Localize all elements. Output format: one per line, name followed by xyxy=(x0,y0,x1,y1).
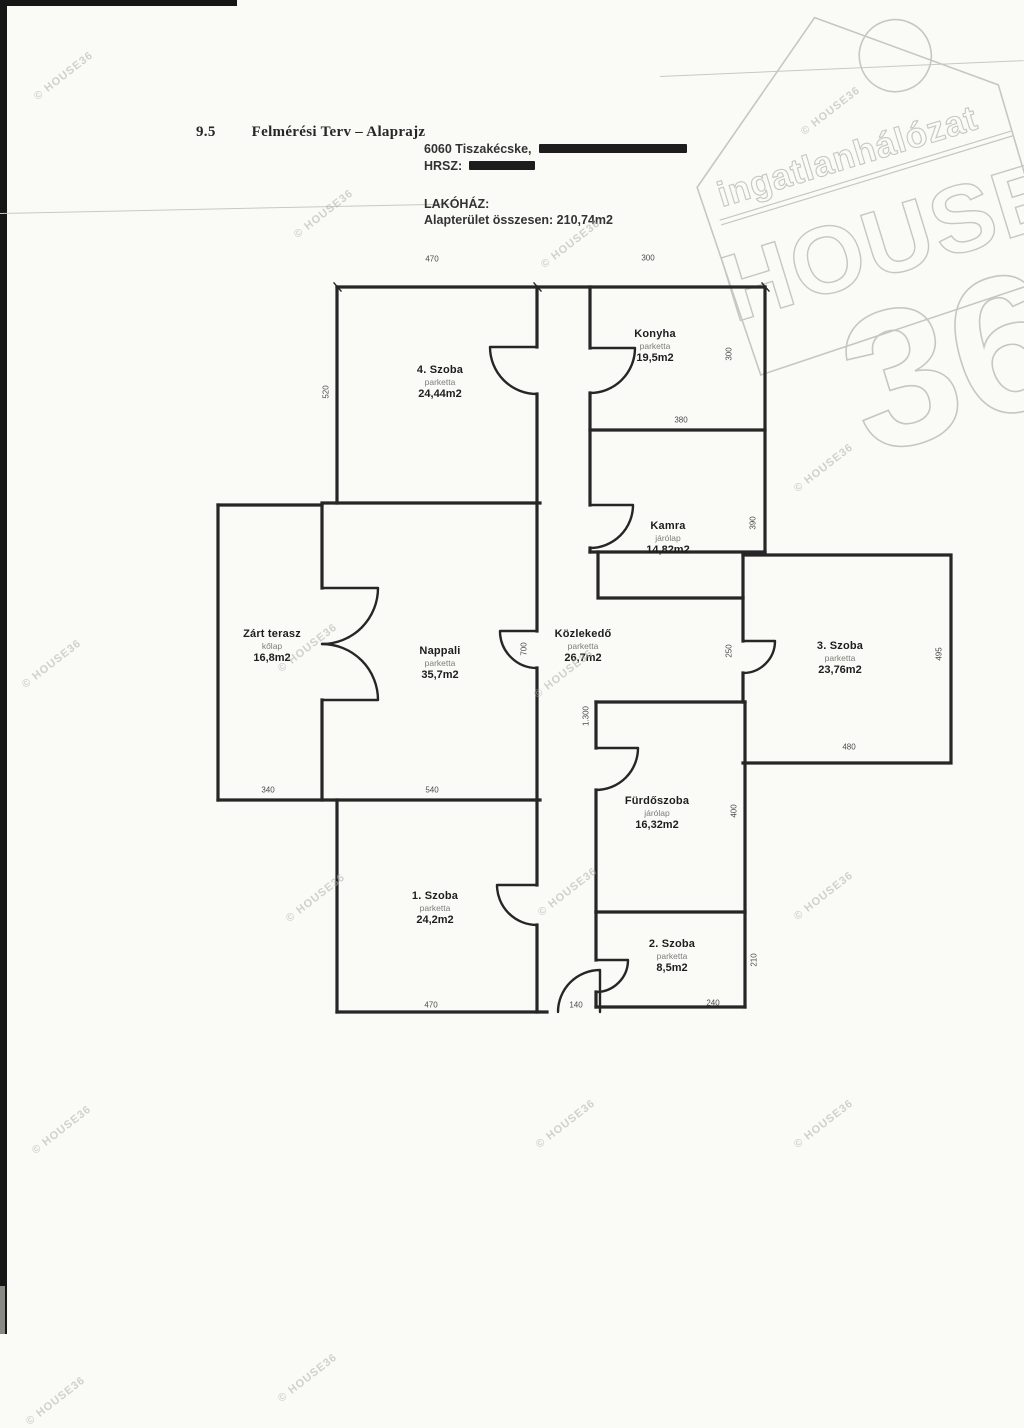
room-name: Nappali xyxy=(419,645,460,657)
room-label-konyha: Konyha parketta 19,5m2 xyxy=(634,328,676,364)
dim-label: 300 xyxy=(725,347,734,360)
dim-label: 700 xyxy=(520,642,529,655)
room-floor: parketta xyxy=(419,658,460,668)
room-label-4-szoba: 4. Szoba parketta 24,44m2 xyxy=(417,364,463,400)
dim-label: 340 xyxy=(261,786,274,795)
dim-label: 520 xyxy=(322,385,331,398)
dim-label: 250 xyxy=(725,644,734,657)
room-floor: kőlap xyxy=(243,641,301,651)
room-name: Kamra xyxy=(646,520,689,532)
room-label-1-szoba: 1. Szoba parketta 24,2m2 xyxy=(412,890,458,926)
room-name: 3. Szoba xyxy=(817,640,863,652)
room-area: 24,44m2 xyxy=(417,388,463,400)
room-label-nappali: Nappali parketta 35,7m2 xyxy=(419,645,460,681)
room-area: 16,32m2 xyxy=(625,819,689,831)
room-name: 2. Szoba xyxy=(649,938,695,950)
room-label-furdoszoba: Fürdőszoba járólap 16,32m2 xyxy=(625,795,689,831)
room-area: 14,82m2 xyxy=(646,544,689,556)
dim-label: 400 xyxy=(730,804,739,817)
room-label-3-szoba: 3. Szoba parketta 23,76m2 xyxy=(817,640,863,676)
room-floor: parketta xyxy=(417,377,463,387)
room-area: 24,2m2 xyxy=(412,914,458,926)
room-floor: parketta xyxy=(412,903,458,913)
room-floor: parketta xyxy=(634,341,676,351)
room-area: 23,76m2 xyxy=(817,664,863,676)
dim-label: 300 xyxy=(641,254,654,263)
dim-label: 380 xyxy=(674,416,687,425)
room-name: Közlekedő xyxy=(555,628,612,640)
dim-label: 390 xyxy=(749,516,758,529)
room-floor: járólap xyxy=(646,533,689,543)
room-floor: parketta xyxy=(817,653,863,663)
room-name: 4. Szoba xyxy=(417,364,463,376)
floorplan-drawing xyxy=(0,0,1024,1409)
room-name: Fürdőszoba xyxy=(625,795,689,807)
dim-label: 470 xyxy=(424,1001,437,1010)
room-area: 8,5m2 xyxy=(649,962,695,974)
room-name: 1. Szoba xyxy=(412,890,458,902)
room-area: 35,7m2 xyxy=(419,669,460,681)
dim-label: 240 xyxy=(706,999,719,1008)
room-area: 19,5m2 xyxy=(634,352,676,364)
dim-label: 495 xyxy=(935,647,944,660)
dim-label: 480 xyxy=(842,743,855,752)
room-label-kamra: Kamra járólap 14,82m2 xyxy=(646,520,689,556)
room-floor: parketta xyxy=(555,641,612,651)
room-floor: járólap xyxy=(625,808,689,818)
room-name: Konyha xyxy=(634,328,676,340)
dim-label: 470 xyxy=(425,255,438,264)
room-name: Zárt terasz xyxy=(243,628,301,640)
dim-label: 1.300 xyxy=(582,706,591,726)
room-floor: parketta xyxy=(649,951,695,961)
room-label-2-szoba: 2. Szoba parketta 8,5m2 xyxy=(649,938,695,974)
dim-label: 210 xyxy=(750,953,759,966)
dim-label: 140 xyxy=(569,1001,582,1010)
scanned-floorplan-document: { "page": { "section_number": "9.5", "se… xyxy=(0,0,1024,1409)
dim-label: 540 xyxy=(425,786,438,795)
